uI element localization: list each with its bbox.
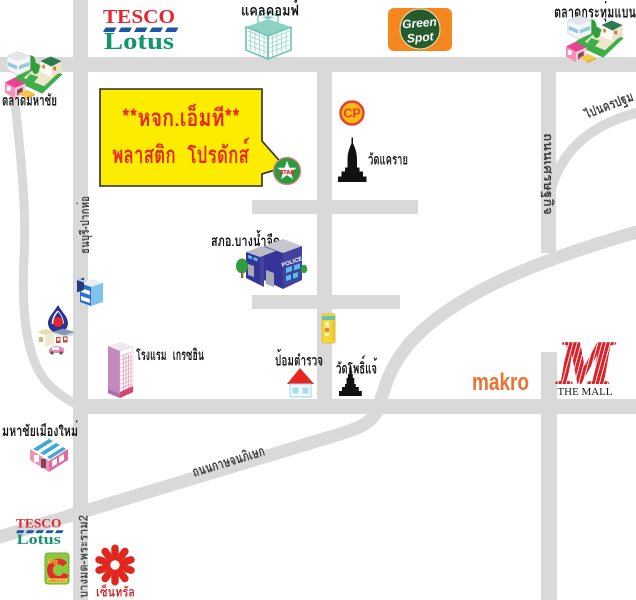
- svg-text:ORIENTAL: ORIENTAL: [48, 579, 66, 583]
- svg-text:makro: makro: [472, 369, 529, 396]
- svg-text:Spot: Spot: [406, 29, 435, 45]
- svg-text:Big: Big: [48, 559, 59, 566]
- svg-text:THE MALL: THE MALL: [558, 386, 613, 398]
- svg-text:STAR: STAR: [279, 170, 295, 176]
- svg-text:CP: CP: [343, 107, 360, 121]
